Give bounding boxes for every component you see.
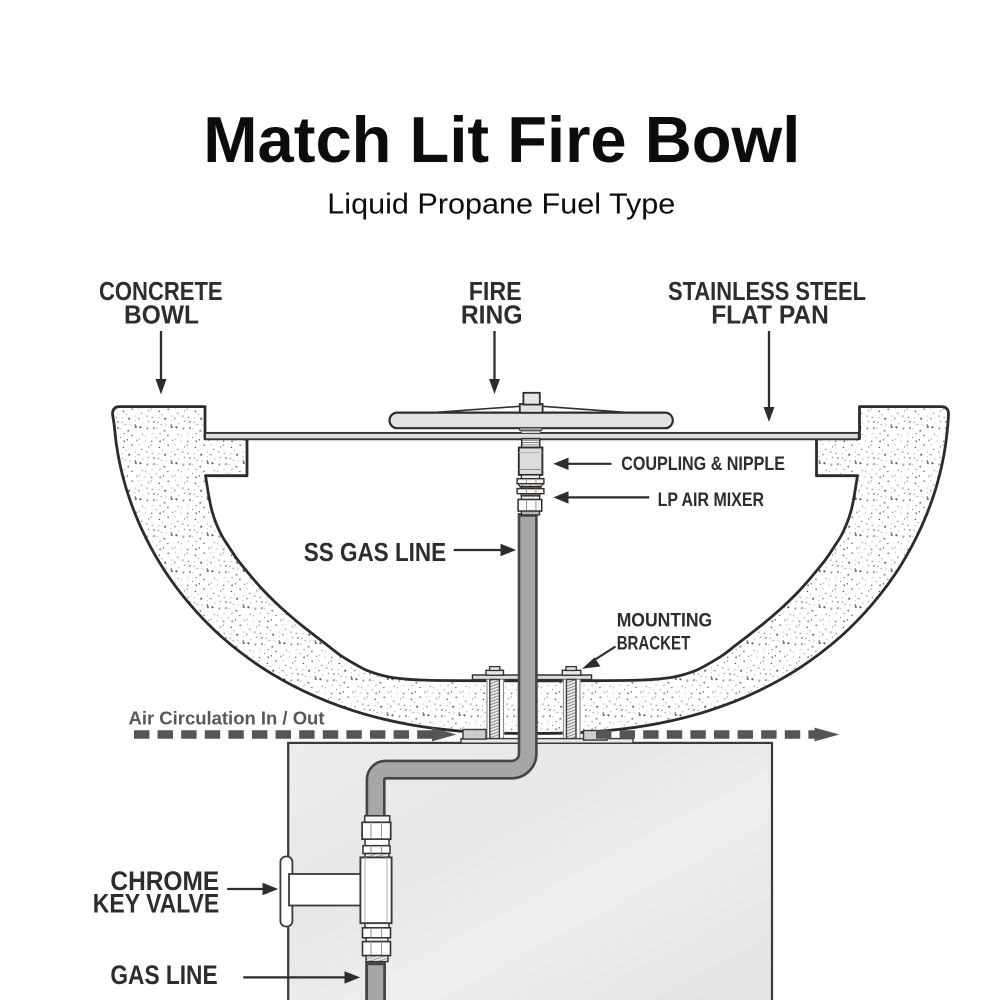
- svg-text:GAS LINE: GAS LINE: [110, 960, 217, 990]
- svg-text:SS GAS LINE: SS GAS LINE: [304, 539, 447, 567]
- svg-text:RING: RING: [461, 302, 523, 330]
- svg-text:Match Lit Fire Bowl: Match Lit Fire Bowl: [203, 104, 800, 176]
- svg-text:BOWL: BOWL: [124, 302, 199, 330]
- svg-text:Liquid Propane Fuel Type: Liquid Propane Fuel Type: [327, 189, 675, 221]
- svg-text:BRACKET: BRACKET: [617, 632, 691, 654]
- svg-text:KEY VALVE: KEY VALVE: [93, 888, 219, 918]
- svg-text:LP AIR MIXER: LP AIR MIXER: [658, 489, 764, 511]
- svg-text:COUPLING & NIPPLE: COUPLING & NIPPLE: [621, 453, 785, 475]
- svg-text:MOUNTING: MOUNTING: [617, 609, 713, 631]
- svg-text:Air Circulation In / Out: Air Circulation In / Out: [129, 707, 325, 728]
- svg-text:FLAT PAN: FLAT PAN: [711, 302, 829, 330]
